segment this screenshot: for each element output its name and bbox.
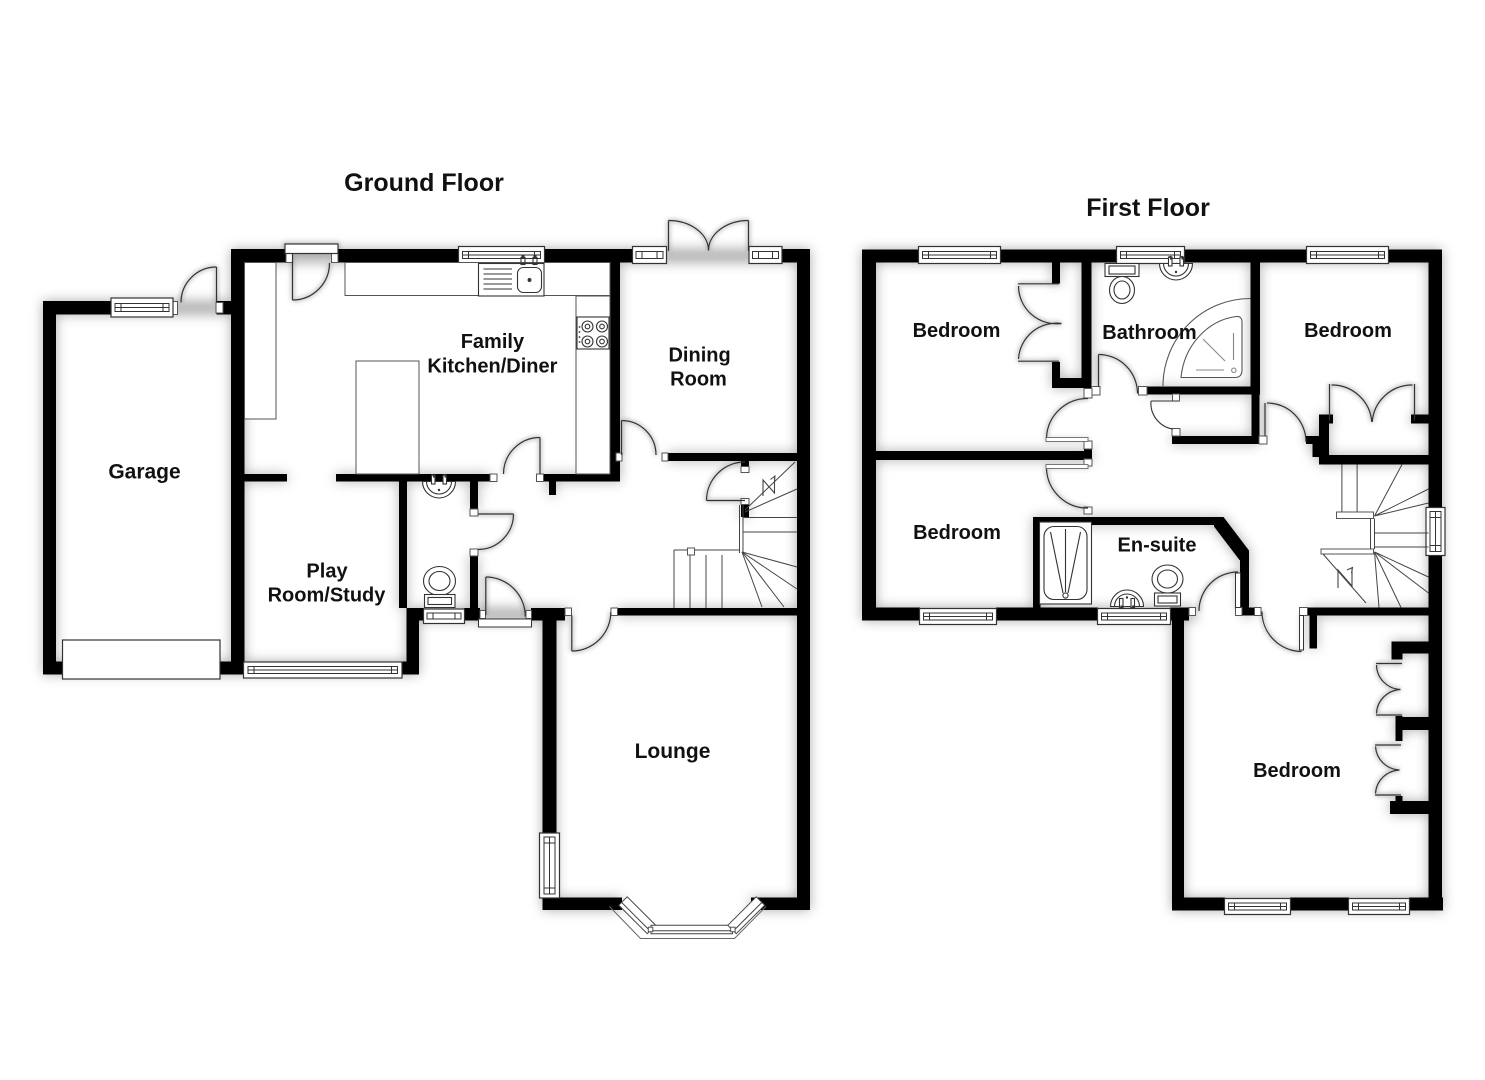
svg-text:Dining: Dining bbox=[668, 345, 730, 367]
svg-text:Lounge: Lounge bbox=[635, 740, 711, 763]
svg-text:Room/Study: Room/Study bbox=[268, 585, 387, 607]
svg-text:Garage: Garage bbox=[108, 461, 180, 484]
svg-text:Bedroom: Bedroom bbox=[1304, 320, 1392, 342]
svg-text:Play: Play bbox=[306, 561, 348, 583]
svg-text:Kitchen/Diner: Kitchen/Diner bbox=[427, 356, 557, 378]
svg-text:Ground Floor: Ground Floor bbox=[344, 169, 504, 197]
svg-text:First Floor: First Floor bbox=[1086, 194, 1210, 222]
svg-text:Family: Family bbox=[461, 331, 525, 353]
svg-text:Bedroom: Bedroom bbox=[913, 320, 1001, 342]
svg-text:En-suite: En-suite bbox=[1118, 535, 1197, 557]
svg-text:Room: Room bbox=[670, 369, 727, 391]
svg-text:Bathroom: Bathroom bbox=[1102, 322, 1196, 344]
svg-text:Bedroom: Bedroom bbox=[913, 522, 1001, 544]
svg-text:Bedroom: Bedroom bbox=[1253, 760, 1341, 782]
